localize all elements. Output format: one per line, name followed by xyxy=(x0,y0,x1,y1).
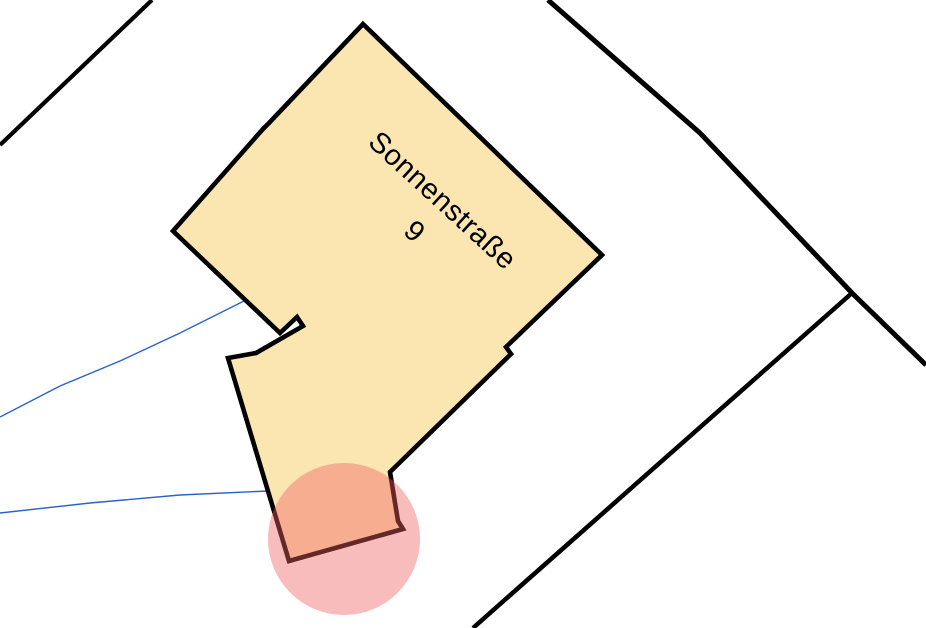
map-viewport[interactable]: Sonnenstraße 9 xyxy=(0,0,926,628)
map-canvas[interactable]: Sonnenstraße 9 xyxy=(0,0,926,628)
highlight-circle xyxy=(268,463,420,615)
